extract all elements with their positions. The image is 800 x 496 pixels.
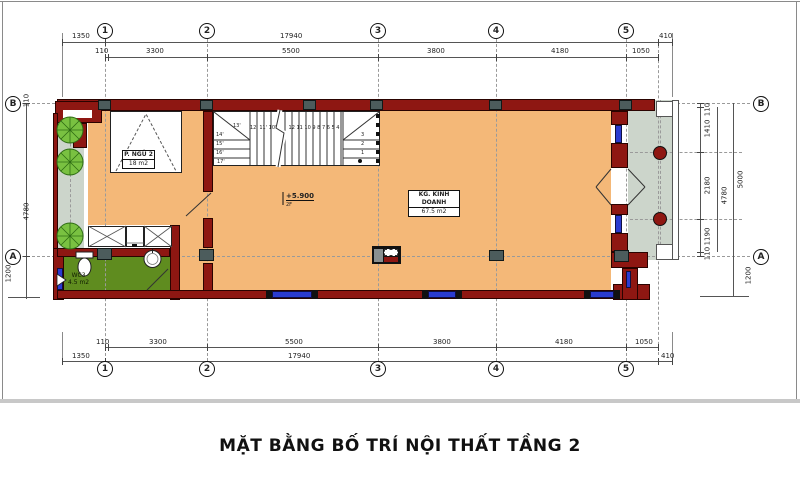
grid-bubble-4: 4 — [488, 361, 504, 377]
wall-niche — [63, 110, 92, 118]
stair-corner-num: 13' — [233, 124, 241, 129]
stair-winder-num: 17' — [217, 160, 225, 165]
right-balcony-floor — [628, 100, 672, 260]
dim-label: 1050 — [632, 48, 650, 55]
floor-plan-sheet: P. NGỦ 2 18 m2 KG. KINH DOANH 67.5 m2 WC… — [0, 0, 800, 496]
sheet-border-right — [796, 1, 797, 400]
stair-run-upper: 12' 11' 10' — [250, 126, 276, 131]
dim-label: 4780 — [24, 197, 31, 227]
dim-line — [105, 347, 658, 348]
sheet-divider — [0, 399, 800, 403]
grid-bubble-4: 4 — [488, 23, 504, 39]
sheet-border-left — [2, 1, 3, 400]
column — [614, 250, 629, 262]
grid-bubble-2: 2 — [199, 361, 215, 377]
dim-label: 1350 — [72, 353, 90, 360]
column — [489, 250, 504, 261]
dim-tick — [697, 219, 704, 220]
cabinet-part — [384, 249, 398, 256]
dim-tick — [108, 54, 109, 61]
dim-label: 4180 — [555, 339, 573, 346]
dim-label: 3300 — [149, 339, 167, 346]
dim-label: 4780 — [722, 181, 729, 211]
sheet-border-top — [0, 1, 800, 2]
grid-bubble-5: 5 — [618, 361, 634, 377]
stair-post — [376, 150, 380, 154]
stair-winder-num: 15' — [216, 142, 224, 147]
wall-right-a — [611, 111, 628, 125]
stair-step-num: 1 — [361, 151, 364, 156]
wall-top — [57, 99, 655, 111]
stair-post — [376, 141, 380, 145]
wall-cap — [312, 290, 318, 299]
wall-bottom — [57, 290, 650, 299]
grid-bubble-A-left: A — [5, 249, 21, 265]
dim-tick — [626, 54, 627, 61]
dim-label: 410 — [661, 353, 674, 360]
wall-bedroom-east-a — [203, 111, 213, 192]
wc-door-window — [57, 268, 63, 290]
level-mark: +5.900 — [286, 192, 314, 201]
grid-line-2 — [207, 39, 208, 361]
grid-bubble-3: 3 — [370, 361, 386, 377]
room-area: 67.5 m2 — [409, 208, 459, 216]
dim-tick — [62, 358, 63, 365]
dim-tick — [697, 152, 704, 153]
dim-tick — [105, 39, 106, 46]
room-area: 4.5 m2 — [68, 279, 89, 286]
business-label: KG. KINH DOANH 67.5 m2 — [408, 190, 460, 217]
column — [303, 100, 316, 110]
right-balcony-rail — [672, 100, 679, 260]
grid-bubble-B-left: B — [5, 96, 21, 112]
dim-tick — [496, 54, 497, 61]
drawing-title: MẶT BẰNG BỐ TRÍ NỘI THẤT TẦNG 2 — [0, 436, 800, 456]
stair-winder-num: 16' — [216, 151, 224, 156]
grid-line-edge — [658, 45, 659, 355]
dim-line — [105, 57, 658, 58]
dim-label: 1050 — [635, 339, 653, 346]
dim-line — [700, 296, 749, 297]
dim-label: 1350 — [72, 33, 90, 40]
dim-label: 4180 — [551, 48, 569, 55]
dim-tick — [105, 54, 106, 61]
dim-label: 17940 — [288, 353, 310, 360]
dim-tick — [378, 344, 379, 351]
wall-bedroom-east-c — [203, 263, 213, 291]
balcony-column-circle — [653, 146, 667, 160]
wall-cap — [266, 290, 272, 299]
balcony-div-line-2 — [630, 219, 742, 220]
room-area: 18 m2 — [123, 160, 154, 168]
stair-step-num: 3 — [361, 133, 364, 138]
stair-post — [376, 123, 380, 127]
wall-stub — [73, 123, 87, 148]
dim-line — [62, 361, 672, 362]
cabinet-part — [374, 249, 383, 262]
dim-label: 1200 — [746, 261, 753, 291]
wardrobe — [144, 226, 172, 247]
stair-run-main: 12 11 10 9 8 7 6 5 4 — [286, 126, 342, 131]
dim-label: 17940 — [280, 33, 302, 40]
wall-right-b — [611, 143, 628, 168]
room-name: WC3 — [68, 272, 89, 279]
grid-bubble-1: 1 — [97, 23, 113, 39]
left-balcony-axis — [70, 113, 71, 253]
dim-tick — [658, 358, 659, 365]
dim-tick — [658, 39, 659, 46]
dim-line — [717, 107, 718, 252]
column — [619, 100, 632, 110]
grid-line-5 — [626, 39, 627, 361]
wall-cap — [584, 290, 590, 299]
dim-label: 110 — [24, 86, 31, 116]
stair-post — [376, 114, 380, 118]
grid-bubble-2: 2 — [199, 23, 215, 39]
bedroom-label: P. NGỦ 2 18 m2 — [122, 150, 155, 169]
room-name: KG. KINH DOANH — [409, 191, 459, 208]
window-bottom-2 — [428, 291, 456, 298]
cabinet-part — [384, 257, 398, 262]
grid-line-3 — [378, 39, 379, 361]
dim-label: 410 — [659, 33, 672, 40]
stair-step-num: 2 — [361, 142, 364, 147]
dim-tick — [658, 54, 659, 61]
dim-tick — [496, 344, 497, 351]
staircase — [213, 111, 380, 166]
column — [97, 248, 112, 260]
stair-post — [376, 159, 380, 163]
dim-label: 110 — [95, 48, 108, 55]
window-right-2 — [615, 215, 622, 233]
wall-cap — [422, 290, 428, 299]
column — [200, 100, 213, 110]
dim-label: 110 — [96, 339, 109, 346]
dim-tick — [207, 54, 208, 61]
grid-bubble-A-right: A — [753, 249, 769, 265]
dim-label: 110 — [705, 239, 712, 269]
dim-line — [8, 297, 40, 298]
balcony-post-bottom — [656, 244, 673, 260]
column — [370, 100, 383, 110]
dim-label: 5000 — [738, 165, 745, 195]
stair-post — [376, 132, 380, 136]
dim-label: 5500 — [285, 339, 303, 346]
window-right-1 — [615, 125, 622, 143]
dim-label: 1410 — [705, 114, 712, 144]
column — [489, 100, 502, 110]
dim-label: 3800 — [427, 48, 445, 55]
grid-bubble-5: 5 — [618, 23, 634, 39]
balcony-column-circle — [653, 212, 667, 226]
dim-tick — [23, 256, 30, 257]
balcony-axis — [660, 100, 661, 260]
column — [98, 100, 111, 110]
dim-line — [62, 42, 672, 43]
left-balcony-rail — [53, 113, 58, 253]
wall-cap — [614, 290, 620, 299]
wc-label: WC3 4.5 m2 — [68, 272, 89, 286]
dim-label: 5500 — [282, 48, 300, 55]
dim-tick — [658, 344, 659, 351]
dim-label: 3800 — [433, 339, 451, 346]
wall-wc-north — [57, 248, 170, 257]
dim-tick — [62, 39, 63, 46]
grid-line-1 — [105, 39, 106, 361]
dim-label: 3300 — [146, 48, 164, 55]
level-floor: 2F — [286, 203, 292, 208]
grid-bubble-1: 1 — [97, 361, 113, 377]
window-bottom-1 — [272, 291, 312, 298]
dim-tick — [207, 344, 208, 351]
grid-bubble-3: 3 — [370, 23, 386, 39]
dim-tick — [378, 54, 379, 61]
wall-bedroom-east-b — [203, 218, 213, 248]
wall-right-c — [611, 204, 628, 215]
column — [199, 249, 214, 261]
balcony-post-top — [656, 101, 673, 117]
dim-tick — [626, 344, 627, 351]
stair-winder-num: 14' — [216, 133, 224, 138]
dim-line — [700, 103, 701, 256]
dim-tick — [672, 39, 673, 46]
window-bottom-3 — [590, 291, 614, 298]
window-right-3 — [626, 271, 631, 288]
balcony-div-line-1 — [630, 152, 742, 153]
wall-cap — [456, 290, 462, 299]
ext-line-left-b — [62, 332, 63, 358]
grid-line-4 — [496, 39, 497, 361]
wardrobe — [88, 226, 126, 247]
grid-bubble-B-right: B — [753, 96, 769, 112]
sink-counter — [126, 226, 144, 247]
room-name: P. NGỦ 2 — [123, 151, 154, 160]
dim-label: 2180 — [705, 171, 712, 201]
dim-line — [733, 103, 734, 296]
